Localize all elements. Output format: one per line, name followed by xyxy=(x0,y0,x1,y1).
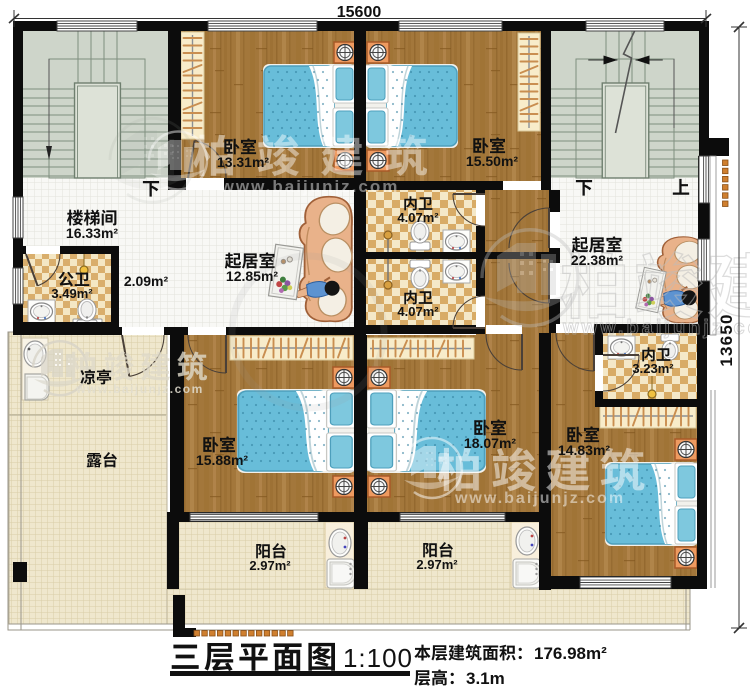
svg-text:2.09m²: 2.09m² xyxy=(124,273,169,289)
svg-text:3.23m²: 3.23m² xyxy=(632,361,674,376)
svg-text:15.88m²: 15.88m² xyxy=(196,452,248,468)
svg-text:1:100: 1:100 xyxy=(343,643,413,673)
svg-text:13650: 13650 xyxy=(717,313,736,366)
svg-text:15.50m²: 15.50m² xyxy=(466,153,518,169)
svg-text:13.31m²: 13.31m² xyxy=(217,154,269,170)
svg-text:www.baijunjz.com: www.baijunjz.com xyxy=(75,382,204,396)
svg-text:2.97m²: 2.97m² xyxy=(249,558,291,573)
svg-text:16.33m²: 16.33m² xyxy=(66,225,118,241)
svg-text:4.07m²: 4.07m² xyxy=(397,210,439,225)
svg-text:22.38m²: 22.38m² xyxy=(571,252,623,268)
svg-text:176.98m²: 176.98m² xyxy=(534,644,607,663)
svg-text:18.07m²: 18.07m² xyxy=(464,435,516,451)
svg-text:www.baijunjz.com: www.baijunjz.com xyxy=(454,490,625,507)
svg-text:3.49m²: 3.49m² xyxy=(51,286,93,301)
svg-text:3.1m: 3.1m xyxy=(466,669,505,688)
svg-text:15600: 15600 xyxy=(337,4,382,21)
svg-text:2.97m²: 2.97m² xyxy=(416,557,458,572)
svg-text:12.85m²: 12.85m² xyxy=(226,268,278,284)
svg-text:14.83m²: 14.83m² xyxy=(558,442,610,458)
svg-text:www.baijunjz.com: www.baijunjz.com xyxy=(220,177,400,196)
svg-text:4.07m²: 4.07m² xyxy=(397,304,439,319)
